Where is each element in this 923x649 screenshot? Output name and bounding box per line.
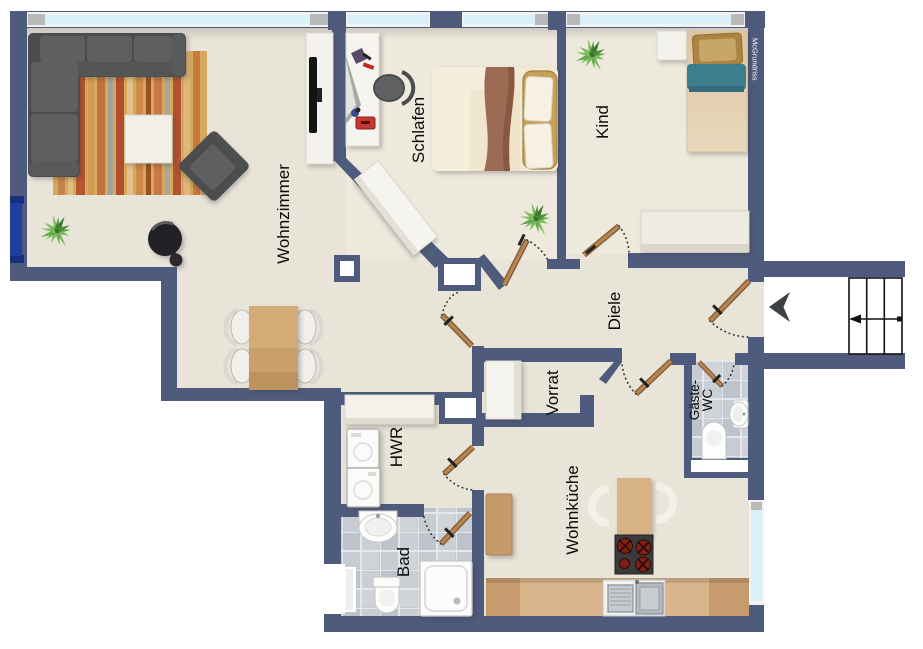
svg-text:Wohnküche: Wohnküche [563, 465, 582, 554]
svg-text:McGrundriss: McGrundriss [751, 38, 760, 81]
svg-text:WC: WC [700, 389, 715, 412]
svg-text:Schlafen: Schlafen [409, 97, 428, 163]
svg-text:Diele: Diele [605, 292, 624, 331]
svg-text:Vorrat: Vorrat [543, 370, 562, 416]
svg-text:Kind: Kind [593, 105, 612, 139]
svg-text:HWR: HWR [387, 427, 406, 468]
svg-text:Wohnzimmer: Wohnzimmer [274, 164, 293, 264]
svg-text:Bad: Bad [394, 547, 413, 577]
